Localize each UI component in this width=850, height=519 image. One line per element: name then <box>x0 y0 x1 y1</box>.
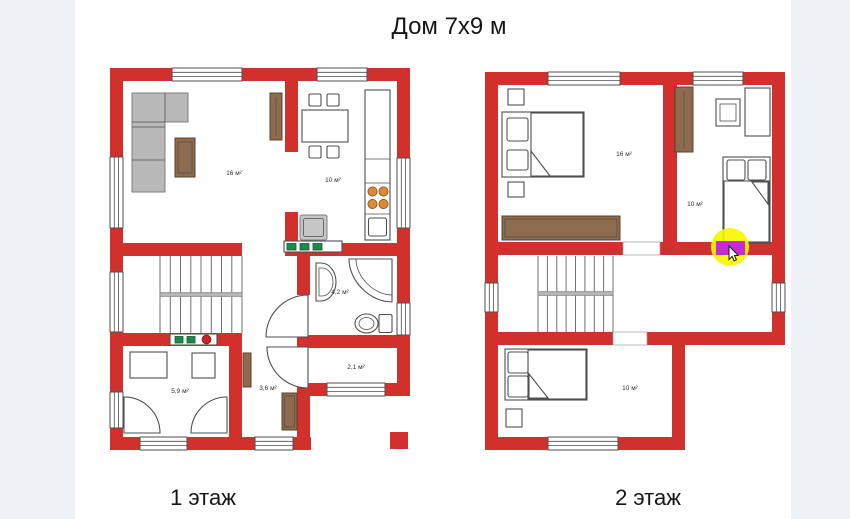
room-label-bedroom-master: 16 м² <box>616 151 633 158</box>
window <box>693 72 743 85</box>
kitchen-table <box>302 110 348 142</box>
window <box>397 158 410 228</box>
floor1-caption: 1 этаж <box>170 485 236 510</box>
window <box>172 68 242 81</box>
floorplan-image: Дом 7x9 м <box>0 0 850 519</box>
bedroom2-wardrobe <box>675 87 693 152</box>
room-label-utility: 5,9 м² <box>171 388 189 395</box>
window <box>317 68 367 81</box>
window <box>140 437 187 450</box>
bedroom3-bed <box>505 349 587 400</box>
window <box>548 437 618 450</box>
window <box>255 437 293 450</box>
window <box>485 283 498 312</box>
window <box>772 283 785 312</box>
bedroom3-nightstand <box>506 409 522 427</box>
kitchen-appliance <box>300 215 327 240</box>
porch-pillar <box>390 432 408 449</box>
stair-rail <box>160 293 242 297</box>
screenshot: Дом 7x9 м <box>0 0 850 519</box>
kitchen-radiator <box>284 241 342 252</box>
doorway-opening <box>613 332 647 345</box>
electric-panel <box>170 334 217 345</box>
hallway-bench <box>243 353 251 387</box>
window <box>110 392 123 428</box>
room-label-entry: 2,1 м² <box>347 364 365 371</box>
window <box>397 303 410 335</box>
room-label-bedroom-right: 10 м² <box>687 201 704 208</box>
window <box>548 72 620 85</box>
wall-cabinet <box>270 93 282 140</box>
bedroom1-wardrobe <box>502 216 620 240</box>
kitchen-counter <box>365 90 390 240</box>
toilet <box>355 314 392 333</box>
room-label-kitchen: 10 м² <box>325 177 342 184</box>
window <box>110 157 123 228</box>
floor2-caption: 2 этаж <box>615 485 681 510</box>
desk <box>745 88 770 136</box>
page-title: Дом 7x9 м <box>392 13 507 40</box>
stair-rail <box>538 292 613 296</box>
kitchen-sink <box>369 218 387 236</box>
indicator-light <box>202 335 211 344</box>
doorway-opening <box>623 242 660 255</box>
room-label-bathroom: 4,2 м² <box>331 289 349 296</box>
coffee-table <box>175 138 195 177</box>
window <box>110 272 123 332</box>
bedroom1-bed <box>502 112 584 177</box>
room-label-bedroom-lower: 10 м² <box>622 385 639 392</box>
entry-door-opening <box>327 383 385 396</box>
room-label-hallway: 3,6 м² <box>259 385 277 392</box>
hallway-cabinet <box>282 393 297 430</box>
room-label-living: 16 м² <box>226 170 243 177</box>
desk-chair <box>716 99 740 126</box>
